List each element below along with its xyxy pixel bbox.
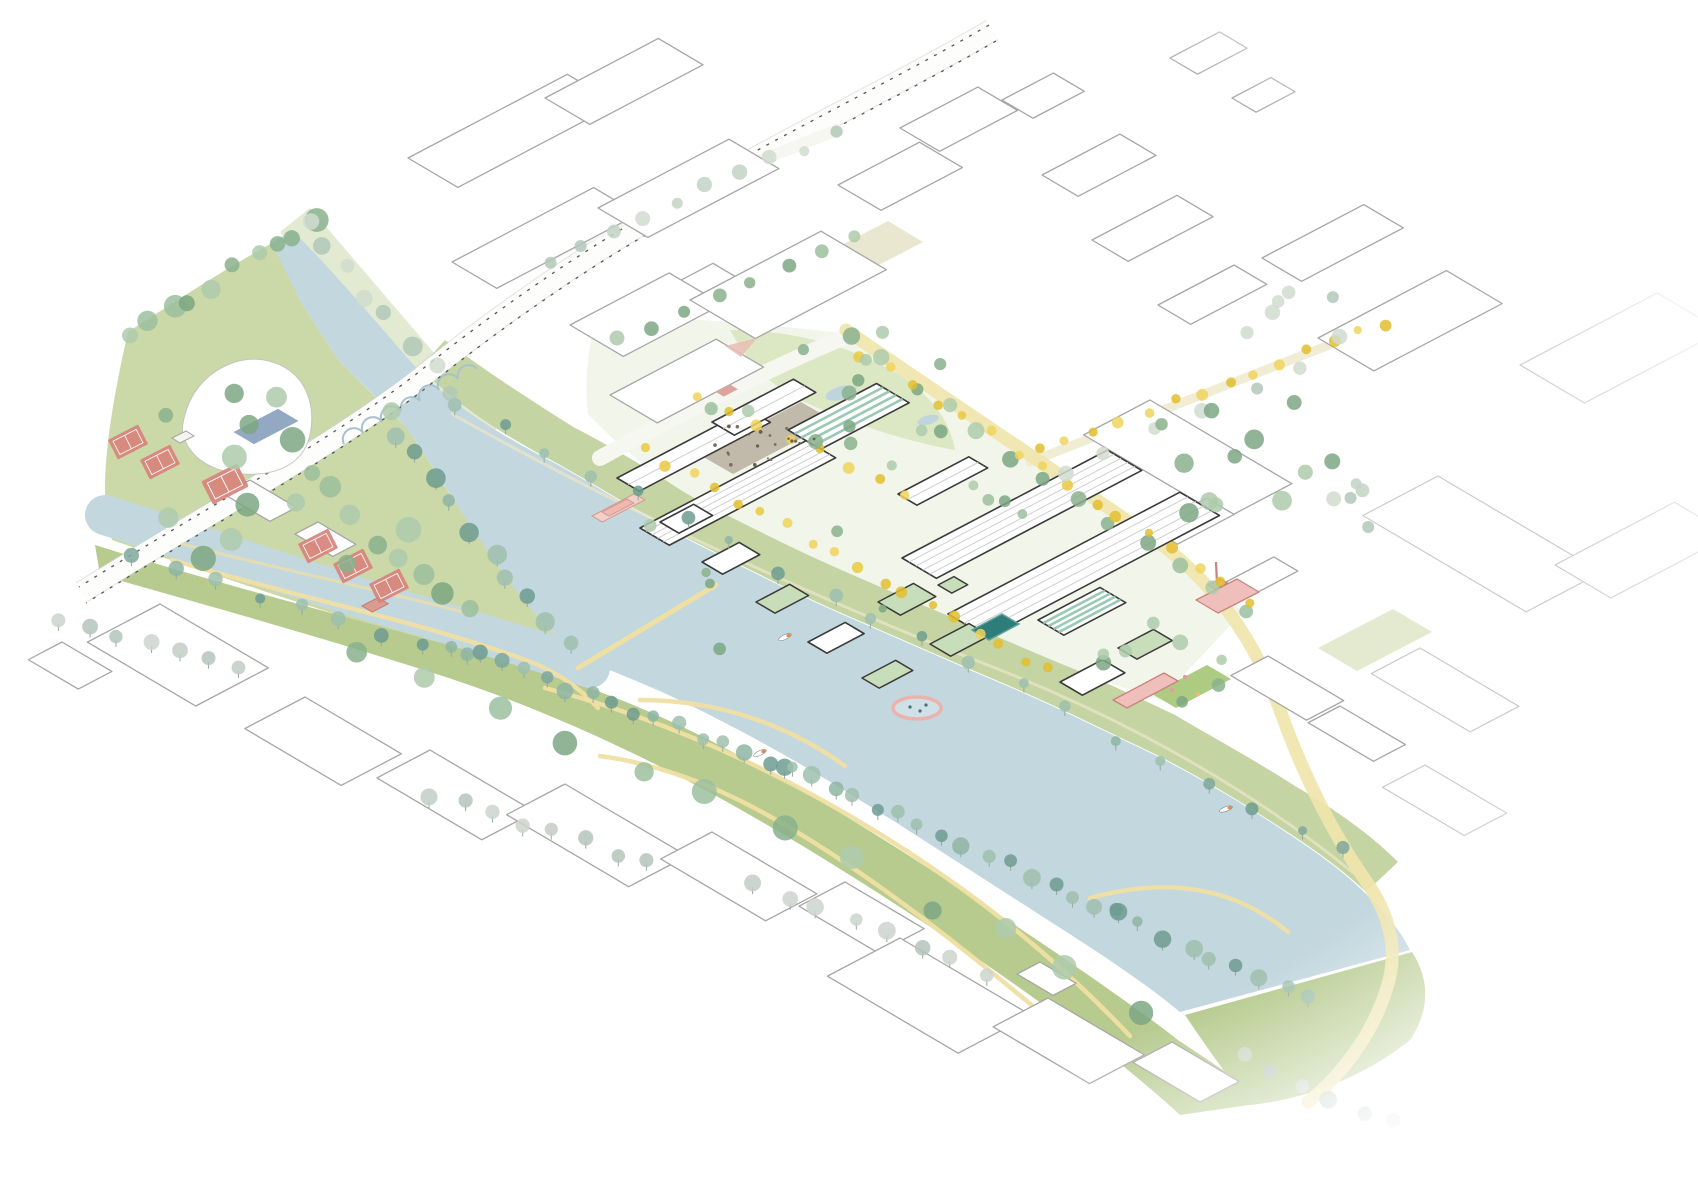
tree [255,594,265,604]
tree [1229,959,1242,972]
tree [225,257,240,272]
tree [873,349,889,365]
tree [1038,461,1047,470]
tree [635,211,650,226]
plaza-figure [798,442,801,445]
tree [900,490,909,499]
tree [460,647,474,661]
city-block [1170,32,1247,74]
tree [865,613,876,624]
tree [716,735,729,748]
tree [1015,451,1024,460]
tree [1227,449,1242,464]
city-block [838,142,962,210]
tree [993,639,1003,649]
tree [1166,542,1178,554]
tree [948,611,960,623]
tree [678,306,690,318]
city-block [598,139,779,237]
tree [1245,802,1258,815]
tree [916,425,927,436]
tree [239,415,258,434]
boat [753,748,768,758]
tree [459,793,473,807]
tree [672,198,683,209]
tree [252,245,267,260]
swim-ring [893,697,941,719]
tree [672,716,686,730]
tree [633,485,644,496]
tree [934,425,948,439]
tree [999,495,1011,507]
tree [1326,491,1341,506]
tree [383,402,401,420]
tree [935,829,948,842]
tree [448,398,462,412]
tree [1098,648,1110,660]
city-block [1318,271,1502,371]
tree [575,240,587,252]
tree [879,605,887,613]
tree [1263,1064,1277,1078]
tree [304,465,320,481]
tree [1035,443,1045,453]
tree [692,779,717,804]
tree [713,643,726,656]
tree [983,850,996,863]
site-plan-canvas [0,0,1698,1200]
tree [733,500,743,510]
tree [1324,453,1340,469]
city-block [377,750,535,840]
plaza-figure [756,444,759,447]
tree [51,613,65,627]
tree [1129,1001,1153,1025]
tree [1086,899,1102,915]
tree [225,384,244,403]
plaza-figure [729,463,733,467]
tree [587,686,600,699]
tree [431,582,454,605]
tree [442,494,454,506]
tree [232,661,246,675]
tree [1380,320,1392,332]
tree [840,845,864,869]
tree [952,837,969,854]
tree [771,567,785,581]
tree [1248,370,1257,379]
tree [844,437,857,450]
plaza-figure [769,434,772,437]
tree [1238,1047,1253,1062]
masterplan-illustration [0,0,1698,1200]
tree [634,762,653,781]
tree [417,639,429,651]
tree [1196,389,1208,401]
city-block [1092,195,1213,261]
city-block [900,87,1017,151]
tree [875,474,885,484]
tree [585,470,597,482]
tree [1386,1113,1400,1127]
tree [109,630,122,643]
tree [982,494,994,506]
tree [1298,826,1307,835]
tree [338,555,356,573]
tree [1216,655,1226,665]
tree [1195,563,1205,573]
tree [303,213,320,230]
tree [1245,599,1254,608]
tree [1274,359,1285,370]
tree [878,922,896,940]
plaza-figure [767,457,769,459]
city-block [1231,656,1344,720]
tree [799,146,809,156]
tree [830,126,842,138]
tree [1265,305,1280,320]
tree [843,462,855,474]
tree [808,434,823,449]
tree [659,460,670,471]
tree [1351,478,1362,489]
tree [280,427,306,453]
tree [539,448,549,458]
tree [744,277,755,288]
tree [782,518,792,528]
tree [296,599,308,611]
tree [782,259,796,273]
plaza-figure [787,437,790,440]
tree [887,460,897,470]
tree [1240,326,1253,339]
faded-city-block [1520,293,1698,403]
tree [1354,326,1362,334]
tree [1251,383,1263,395]
tree [485,805,499,819]
tree [845,788,859,802]
tree [782,891,798,907]
tree [414,667,435,688]
tree [852,562,863,573]
tree [545,257,557,269]
tree [313,237,331,255]
faded-city-block [1371,648,1519,732]
tree [710,483,720,493]
tree [986,425,996,435]
tree [1140,535,1156,551]
tree [639,853,653,867]
boat-hull [753,748,768,758]
tree [201,280,220,299]
tree [815,244,829,258]
tree [368,536,387,555]
tree [908,380,918,390]
plaza-figure [790,439,793,442]
tree [1017,509,1027,519]
tree [564,636,579,651]
tree [1250,969,1267,986]
tree [1145,408,1155,418]
tree [943,398,957,412]
tree [500,419,511,430]
plaza-figure [748,433,750,435]
tree [1154,930,1171,947]
tree [355,290,372,307]
tree [693,392,702,401]
tree [798,344,809,355]
tree [725,536,733,544]
tree [829,781,844,796]
plaza-figure [774,443,777,446]
tree [732,164,747,179]
tree [376,305,391,320]
tree [852,374,864,386]
tree [158,408,173,423]
tree [831,525,843,537]
tree [1212,678,1226,692]
tree [701,568,710,577]
plaza-figure [794,440,797,443]
tree [911,818,923,830]
tree [1336,841,1349,854]
city-block [1158,265,1267,324]
tree [340,505,361,526]
plaza-figure [727,451,729,453]
tree [1093,500,1103,510]
tree [644,519,657,532]
tree [387,427,405,445]
tree [690,468,699,477]
tree [1023,869,1041,887]
plaza-figure [770,458,773,461]
tree [403,336,423,356]
tree [876,326,889,339]
tree [1109,511,1121,523]
tree [975,629,985,639]
tree [1298,465,1313,480]
tree [1112,417,1124,429]
city-block [1232,78,1295,113]
tree [1052,955,1077,980]
tree [1204,403,1220,419]
tree [518,662,531,675]
plaza-figure [736,425,739,428]
tree [220,528,243,551]
tree [1344,492,1356,504]
tree [396,517,422,543]
tree [872,804,884,816]
faded-city-block [1363,476,1602,612]
tree [1301,344,1311,354]
tree [429,357,445,373]
tree [1272,491,1292,511]
tree [742,405,754,417]
tree [923,901,941,919]
tree [934,358,946,370]
tree [1358,1106,1372,1120]
tree [1060,436,1069,445]
tree [1202,952,1216,966]
tree [843,420,855,432]
city-block [507,784,688,887]
tree [426,468,446,488]
plaza-figure [753,463,757,467]
tree [1172,634,1188,650]
tree [607,225,621,239]
tree [445,641,457,653]
tree [1021,657,1030,666]
tree [1050,877,1064,891]
tree [331,611,346,626]
tree [1119,644,1132,657]
tree [755,507,764,516]
tree [578,830,593,845]
tree [682,511,696,525]
tree [929,601,937,609]
tree [1172,558,1188,574]
tree [137,311,157,331]
tree [495,653,510,668]
tree [644,321,659,336]
tree [516,819,530,833]
tree [346,642,367,663]
tree [1059,700,1070,711]
plaza-figure [785,427,788,430]
tree [202,651,216,665]
tree [886,362,895,371]
tree [705,402,718,415]
tree [1110,903,1128,921]
tree [1096,447,1109,460]
city-block [1262,205,1403,282]
tree [1179,503,1198,522]
tree [1019,678,1029,688]
tree [1145,529,1153,537]
tree [713,289,727,303]
tree [553,731,578,756]
tree [641,443,650,452]
tree [1226,377,1236,387]
tree [461,600,478,617]
tree [915,940,931,956]
city-block [1308,706,1405,761]
tree [610,331,625,346]
tree [980,968,994,982]
tree [744,874,761,891]
tree [1332,329,1348,345]
tree [420,788,437,805]
tree [122,328,138,344]
tree [545,823,558,836]
tree [1362,521,1374,533]
tree [750,420,762,432]
tree [829,589,843,603]
tree [144,634,160,650]
tree [860,354,872,366]
tree [612,849,625,862]
tree [1301,990,1316,1005]
tree [1171,394,1180,403]
tree [806,898,823,915]
tree [933,401,943,411]
tree [895,586,907,598]
tree [172,642,188,658]
tree [697,733,709,745]
tree [830,547,839,556]
tree [1132,916,1142,926]
tree [917,631,928,642]
tree [1036,472,1050,486]
tree [968,422,985,439]
tree [487,545,507,565]
tree [374,628,389,643]
tree [1244,430,1264,450]
tree [557,683,574,700]
tree [341,259,355,273]
tree [968,480,978,490]
tree [270,236,286,252]
city-block [245,697,402,785]
tree [1174,454,1193,473]
tree [1155,756,1165,766]
tree [1058,466,1074,482]
tree [489,697,512,720]
tree [843,327,860,344]
tree [497,570,513,586]
tree [1319,1091,1337,1109]
tree [1155,418,1167,430]
faded-city-block [1383,765,1507,835]
tree [647,710,659,722]
tree [1088,427,1097,436]
tree [881,579,891,589]
tree [208,572,222,586]
tree [235,493,259,517]
plaza-figure [813,438,816,441]
tree [995,918,1016,939]
tree [1066,891,1079,904]
tree [787,762,798,773]
tree [842,386,857,401]
tree [762,150,776,164]
tree [736,744,753,761]
tree [1043,662,1053,672]
tree [942,950,957,965]
tree [809,540,818,549]
tree [287,493,305,511]
tree [266,387,287,408]
tree [962,656,975,669]
tree [957,411,966,420]
tree [891,805,905,819]
tree [848,230,860,242]
tree [536,612,555,631]
tree [1147,617,1160,630]
tree [1282,286,1295,299]
tree [1203,778,1215,790]
tree [605,696,618,709]
tree [724,407,733,416]
tree [541,671,553,683]
tree [124,548,139,563]
tree [850,913,862,925]
tree [82,619,98,635]
tree [459,523,478,542]
tree [191,546,216,571]
tree [1185,940,1203,958]
plaza-figure [727,425,731,429]
